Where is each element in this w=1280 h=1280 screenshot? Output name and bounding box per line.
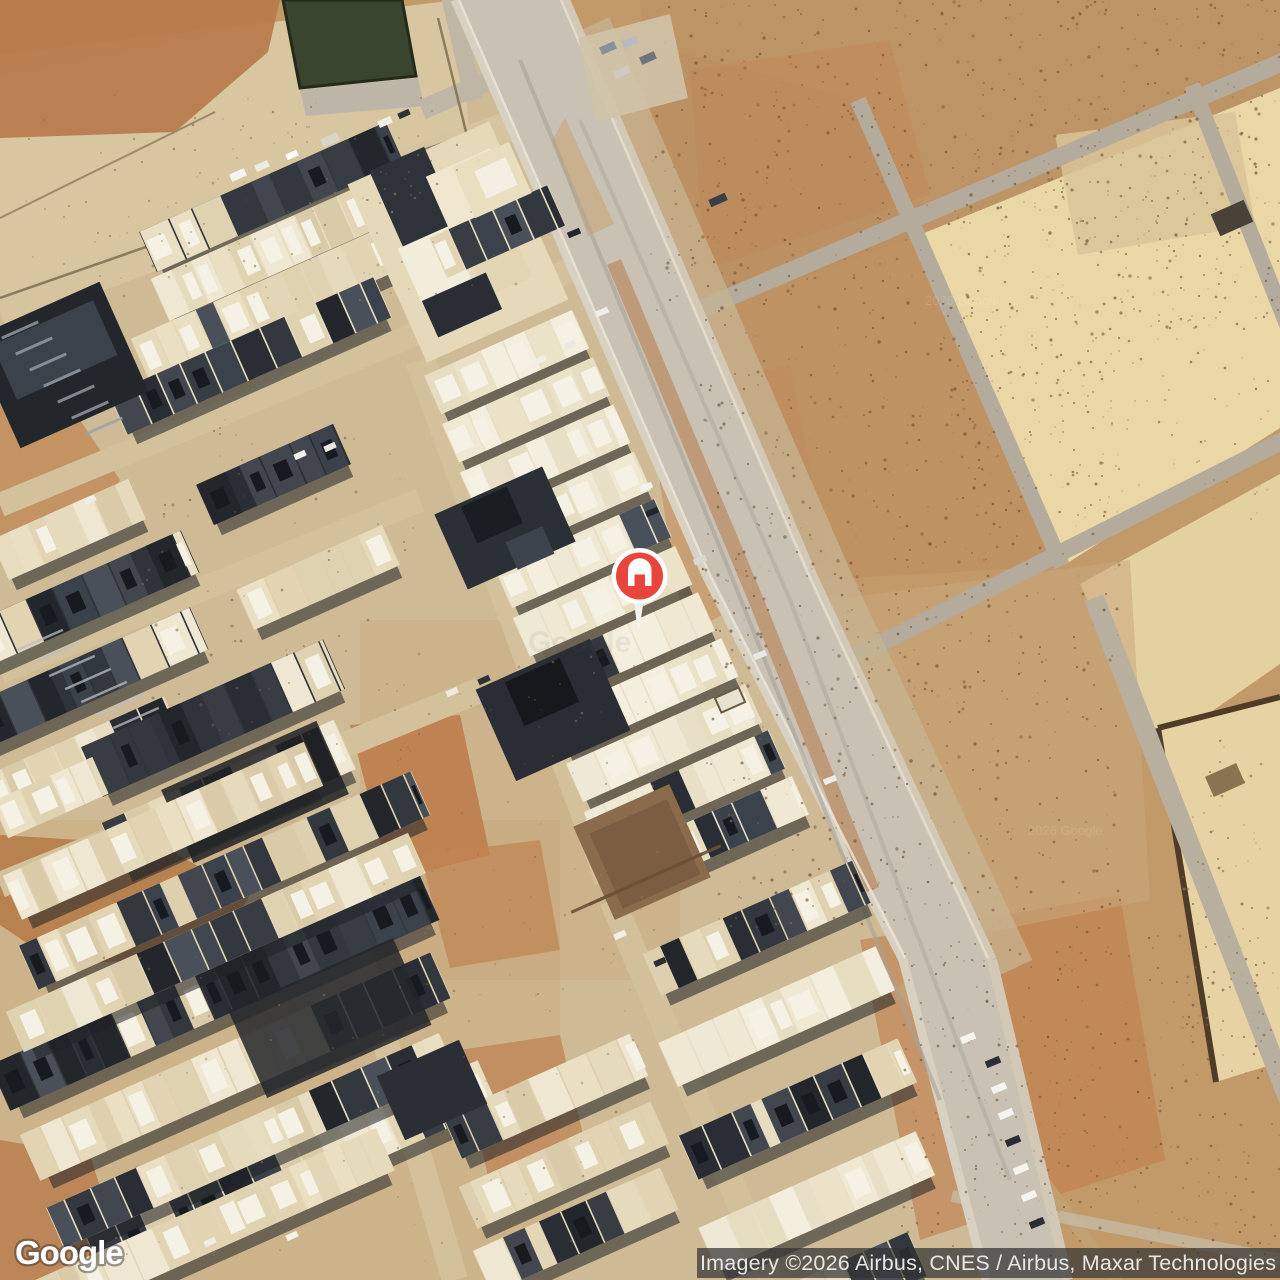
svg-text:2026 Google: 2026 Google (1028, 823, 1102, 838)
svg-text:Google: Google (15, 1234, 123, 1271)
svg-text:Google: Google (528, 626, 631, 659)
svg-text:Imagery ©2026 Airbus, CNES / A: Imagery ©2026 Airbus, CNES / Airbus, Max… (700, 1251, 1276, 1275)
svg-text:2026 Google: 2026 Google (925, 293, 999, 308)
